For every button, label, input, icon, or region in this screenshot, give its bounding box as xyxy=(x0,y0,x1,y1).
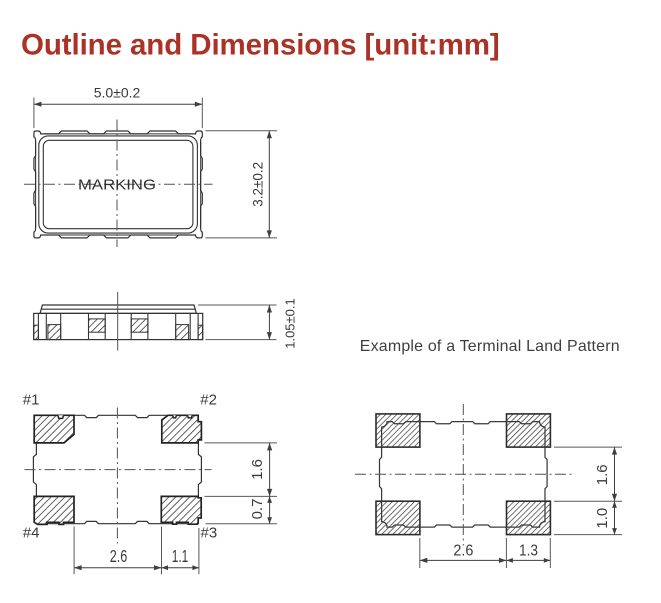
svg-text:2.6: 2.6 xyxy=(110,546,128,566)
svg-text:5.0±0.2: 5.0±0.2 xyxy=(94,84,141,100)
svg-text:MARKING: MARKING xyxy=(78,177,156,193)
svg-text:#4: #4 xyxy=(23,525,40,542)
svg-text:1.1: 1.1 xyxy=(172,546,189,566)
svg-text:1.6: 1.6 xyxy=(249,459,266,480)
svg-text:1.05±0.1: 1.05±0.1 xyxy=(282,298,297,349)
svg-text:1.6: 1.6 xyxy=(594,464,611,485)
svg-text:1.0: 1.0 xyxy=(594,508,611,529)
svg-text:#3: #3 xyxy=(201,525,218,542)
svg-text:0.7: 0.7 xyxy=(249,499,266,520)
svg-text:#2: #2 xyxy=(200,392,217,409)
svg-text:#1: #1 xyxy=(23,392,40,409)
svg-text:Example of a Terminal Land Pat: Example of a Terminal Land Pattern xyxy=(360,338,620,355)
svg-text:3.2±0.2: 3.2±0.2 xyxy=(250,162,265,207)
svg-text:Outline and Dimensions [unit:m: Outline and Dimensions [unit:mm] xyxy=(21,29,500,62)
svg-text:2.6: 2.6 xyxy=(453,542,473,559)
svg-text:1.3: 1.3 xyxy=(519,542,538,559)
